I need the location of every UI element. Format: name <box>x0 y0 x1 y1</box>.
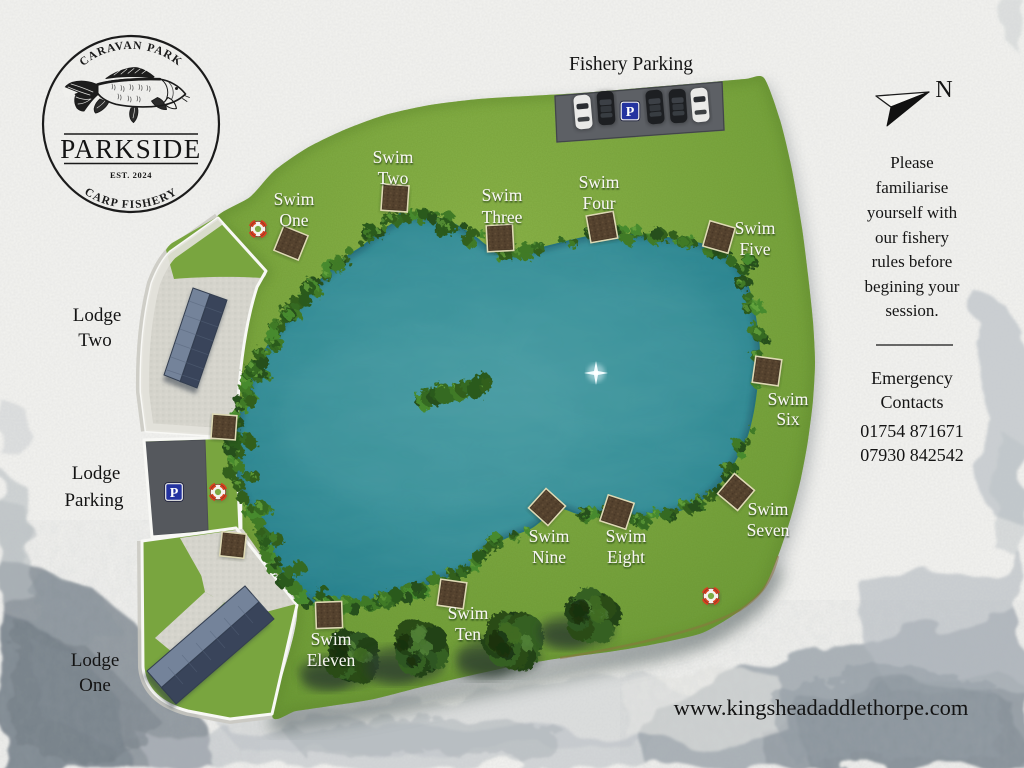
svg-text:Please: Please <box>890 153 933 172</box>
svg-text:Swim: Swim <box>606 526 647 546</box>
svg-text:Eight: Eight <box>607 547 645 567</box>
svg-text:Swim: Swim <box>529 526 570 546</box>
svg-text:session.: session. <box>885 301 938 320</box>
svg-text:EST. 2024: EST. 2024 <box>110 170 152 180</box>
svg-text:Four: Four <box>582 193 615 213</box>
svg-text:Swim: Swim <box>311 629 352 649</box>
svg-text:Nine: Nine <box>532 547 566 567</box>
svg-text:Swim: Swim <box>748 499 789 519</box>
svg-text:Emergency: Emergency <box>871 368 953 388</box>
svg-text:Swim: Swim <box>482 185 523 205</box>
svg-text:Swim: Swim <box>274 189 315 209</box>
svg-text:rules before: rules before <box>872 252 953 271</box>
svg-text:Two: Two <box>78 330 112 351</box>
svg-text:Fishery Parking: Fishery Parking <box>569 54 693 75</box>
svg-text:www.kingsheadaddlethorpe.com: www.kingsheadaddlethorpe.com <box>674 695 969 720</box>
svg-text:Three: Three <box>482 207 523 227</box>
svg-text:One: One <box>279 210 308 230</box>
svg-text:Six: Six <box>776 409 800 429</box>
svg-text:Lodge: Lodge <box>71 650 120 671</box>
svg-text:Swim: Swim <box>373 147 414 167</box>
svg-text:Seven: Seven <box>747 520 790 540</box>
svg-text:Swim: Swim <box>735 218 776 238</box>
svg-text:PARKSIDE: PARKSIDE <box>60 134 202 164</box>
svg-text:Swim: Swim <box>448 603 489 623</box>
svg-text:yourself with: yourself with <box>867 203 958 222</box>
svg-text:01754 871671: 01754 871671 <box>860 421 964 441</box>
svg-text:P: P <box>626 105 635 120</box>
svg-text:begining your: begining your <box>865 277 960 296</box>
svg-text:Parking: Parking <box>64 490 124 511</box>
svg-text:our fishery: our fishery <box>875 228 950 247</box>
svg-text:Swim: Swim <box>579 172 620 192</box>
svg-text:Two: Two <box>378 168 409 188</box>
svg-text:Lodge: Lodge <box>73 305 122 326</box>
svg-text:07930 842542: 07930 842542 <box>860 445 964 465</box>
svg-text:Five: Five <box>739 239 770 259</box>
svg-text:N: N <box>935 77 952 103</box>
svg-text:P: P <box>170 486 179 501</box>
svg-text:Eleven: Eleven <box>307 650 356 670</box>
svg-text:Ten: Ten <box>455 624 481 644</box>
svg-text:Contacts: Contacts <box>881 392 944 412</box>
svg-text:familiarise: familiarise <box>876 178 949 197</box>
svg-text:Swim: Swim <box>768 389 809 409</box>
svg-text:Lodge: Lodge <box>72 463 121 484</box>
svg-text:One: One <box>79 675 111 696</box>
